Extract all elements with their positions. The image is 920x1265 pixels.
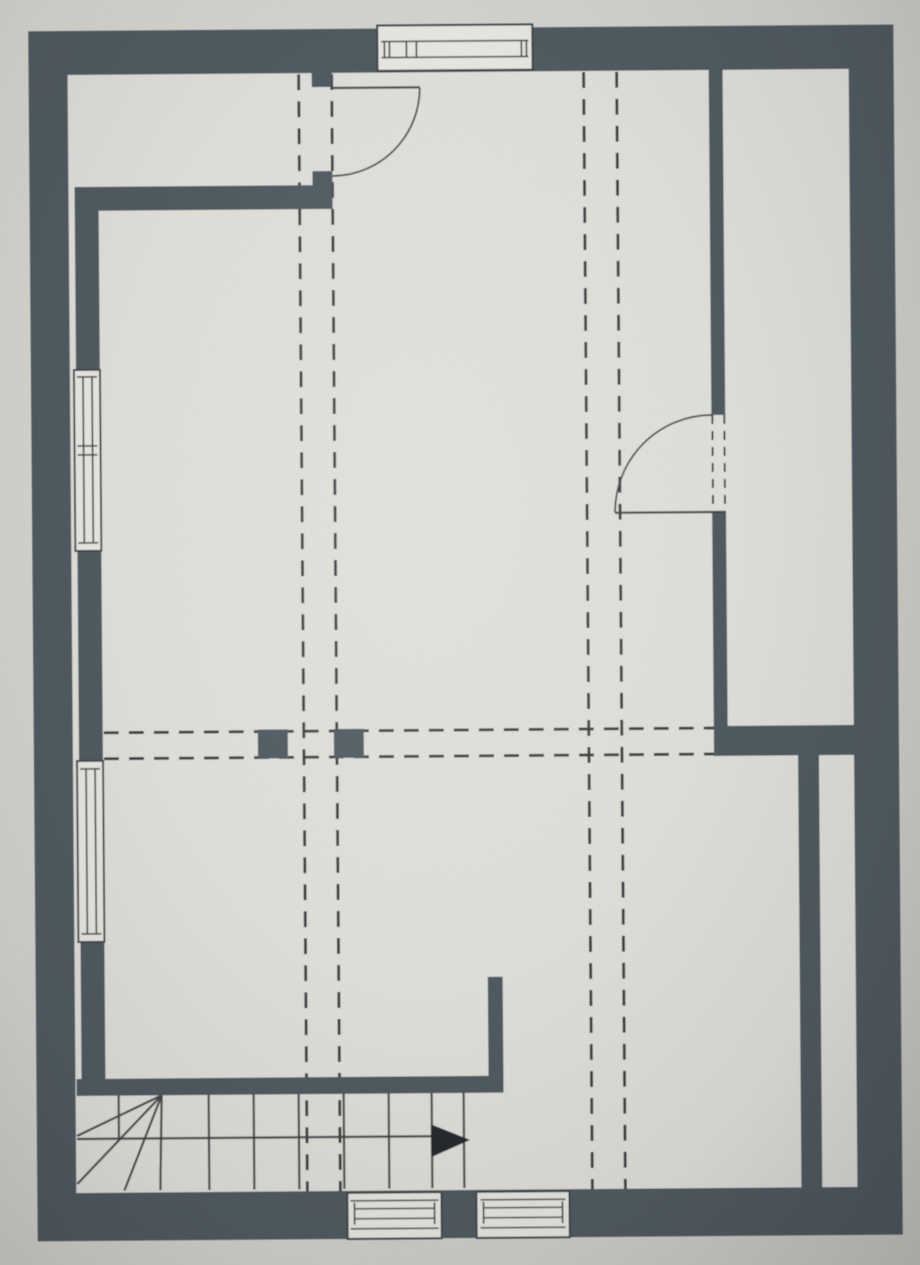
paper-grain-overlay [0,0,920,1265]
floor-plan-svg [0,0,920,1265]
floor-plan-photo [0,0,920,1265]
